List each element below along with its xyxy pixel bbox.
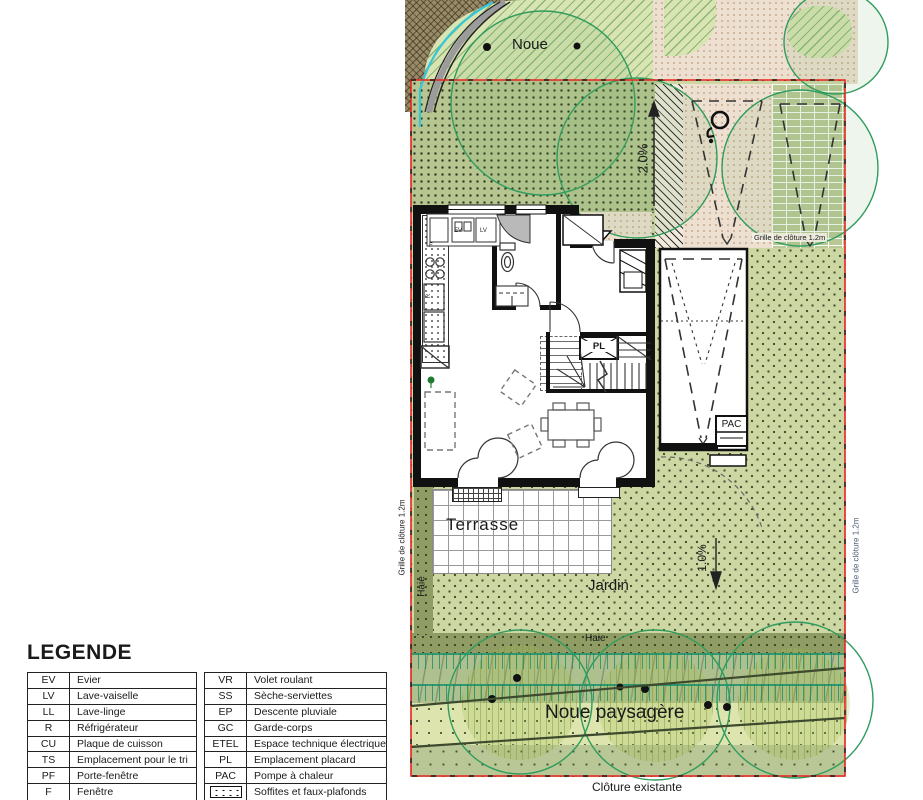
legend-row: EPDescente pluviale (205, 705, 386, 721)
legend-row: PLEmplacement placard (205, 752, 386, 768)
terrasse-label: Terrasse (446, 515, 519, 535)
gate-swing-arc (661, 457, 762, 528)
soffites-symbol (210, 786, 242, 798)
slope-arrow-garden (711, 538, 721, 588)
window-north-1 (448, 205, 505, 214)
legend-row: Soffites et faux-plafonds (205, 784, 386, 800)
legend-row: RRéfrigérateur (28, 721, 196, 737)
carport-bottom-wall (660, 443, 718, 451)
dining-table (541, 403, 601, 447)
closet-pl-label: PL (584, 341, 614, 352)
legend-row: ETELEspace technique électrique (205, 737, 386, 753)
furniture (425, 370, 601, 458)
noue-paysagere-label: Noue paysagère (545, 702, 684, 724)
dishwasher-label: LV (480, 228, 487, 234)
carport-step (710, 455, 746, 466)
legend-row: SSSèche-serviettes (205, 689, 386, 705)
plant-icon (428, 377, 435, 389)
carport (660, 249, 762, 528)
legend-row: LLLave-linge (28, 705, 196, 721)
fence-grille-top-label: Grille de clôture 1.2m (752, 233, 827, 242)
vanity (496, 286, 528, 306)
legend-row: PACPompe à chaleur (205, 768, 386, 784)
window-label: F (429, 243, 433, 249)
fence-grille-left-label: Grille de clôture 1.2m (398, 488, 407, 588)
kitchen-counter (427, 214, 500, 246)
cooktop-burners (421, 258, 449, 368)
armchair-2 (508, 424, 543, 459)
slope-garden-label: 1.0% (695, 528, 709, 588)
toilet-icon (500, 243, 515, 272)
haie-left-label: Haie (417, 567, 428, 607)
closet-hatched (620, 250, 646, 292)
legend-row: FFenêtre (28, 784, 196, 800)
legend-row: GCGarde-corps (205, 721, 386, 737)
window-north-2 (516, 205, 546, 214)
legend-row: EVEvier (28, 673, 196, 689)
legend-row: CUPlaque de cuisson (28, 737, 196, 753)
sink-label: EV (454, 228, 462, 234)
armchair-1 (500, 370, 536, 406)
sofa (425, 392, 455, 450)
legend-row: TSEmplacement pour le tri (28, 752, 196, 768)
cloture-existante-label: Clôture existante (592, 780, 682, 794)
fridge-label: R (426, 291, 432, 301)
legend-row: LVLave-vaiselle (28, 689, 196, 705)
legend-row: PFPorte-fenêtre (28, 768, 196, 784)
haie-bottom-label: Haie (585, 633, 606, 644)
noue-label: Noue (512, 36, 548, 53)
heat-pump-label: PAC (718, 419, 745, 430)
site-plan-page: Noue 2.0% Grille de clôture 1.2m Grille … (0, 0, 923, 800)
shower-unit (497, 215, 603, 245)
legend-title: LEGENDE (27, 641, 132, 665)
fence-grille-right-label: Grille de clôture 1.2m (852, 506, 861, 606)
coat-corner (497, 215, 530, 243)
legend-table-right: VRVolet roulant SSSèche-serviettes EPDes… (204, 672, 387, 800)
french-door-1 (458, 438, 518, 478)
jardin-label: Jardin (588, 577, 629, 594)
legend-row: VRVolet roulant (205, 673, 386, 689)
parking-arrow-1 (723, 238, 731, 244)
slope-top-label: 2.0% (636, 124, 651, 194)
legend-table-left: EVEvier LVLave-vaiselle LLLave-linge RRé… (27, 672, 197, 800)
